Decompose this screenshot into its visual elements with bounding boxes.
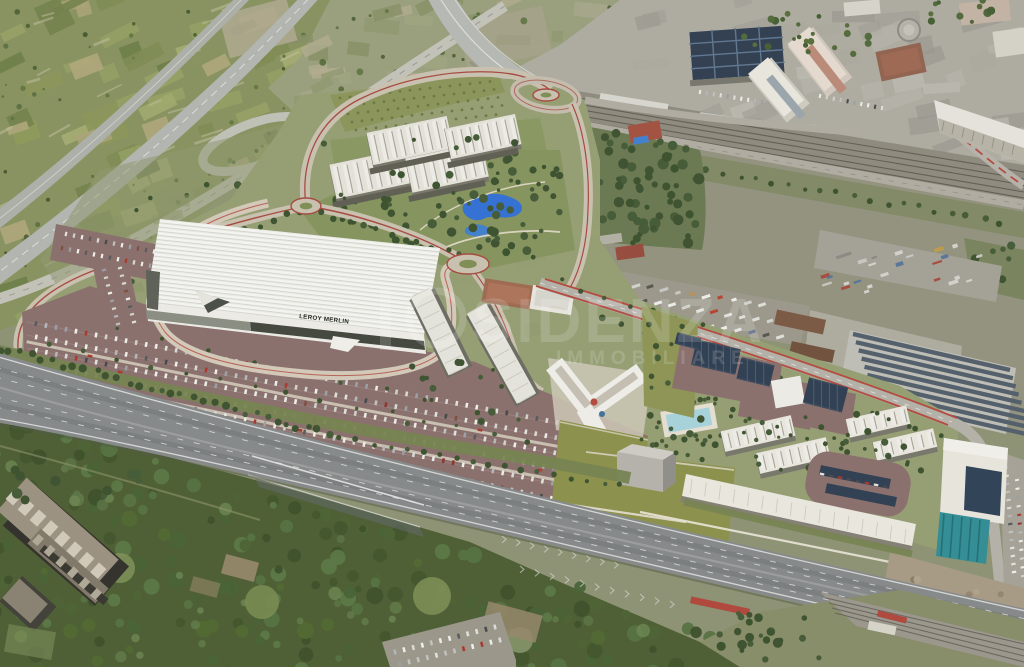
svg-text:IMMOBILIARE: IMMOBILIARE (556, 348, 750, 369)
svg-text:SIDENZA: SIDENZA (472, 287, 765, 356)
